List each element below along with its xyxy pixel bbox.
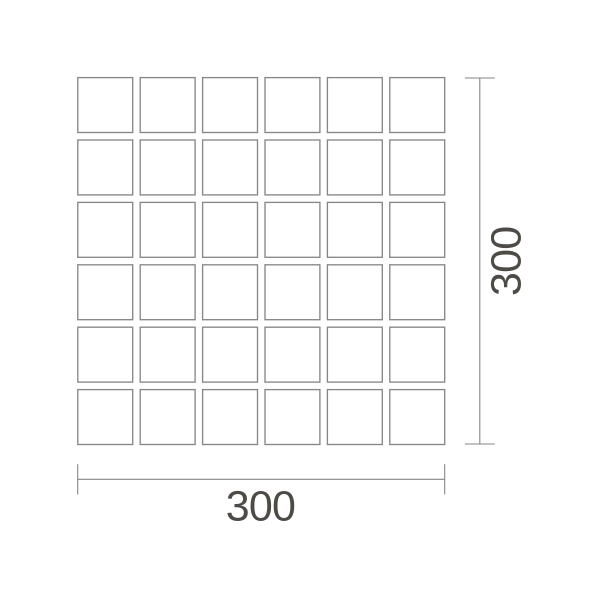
svg-text:300: 300 — [483, 227, 531, 296]
svg-text:300: 300 — [226, 483, 295, 531]
